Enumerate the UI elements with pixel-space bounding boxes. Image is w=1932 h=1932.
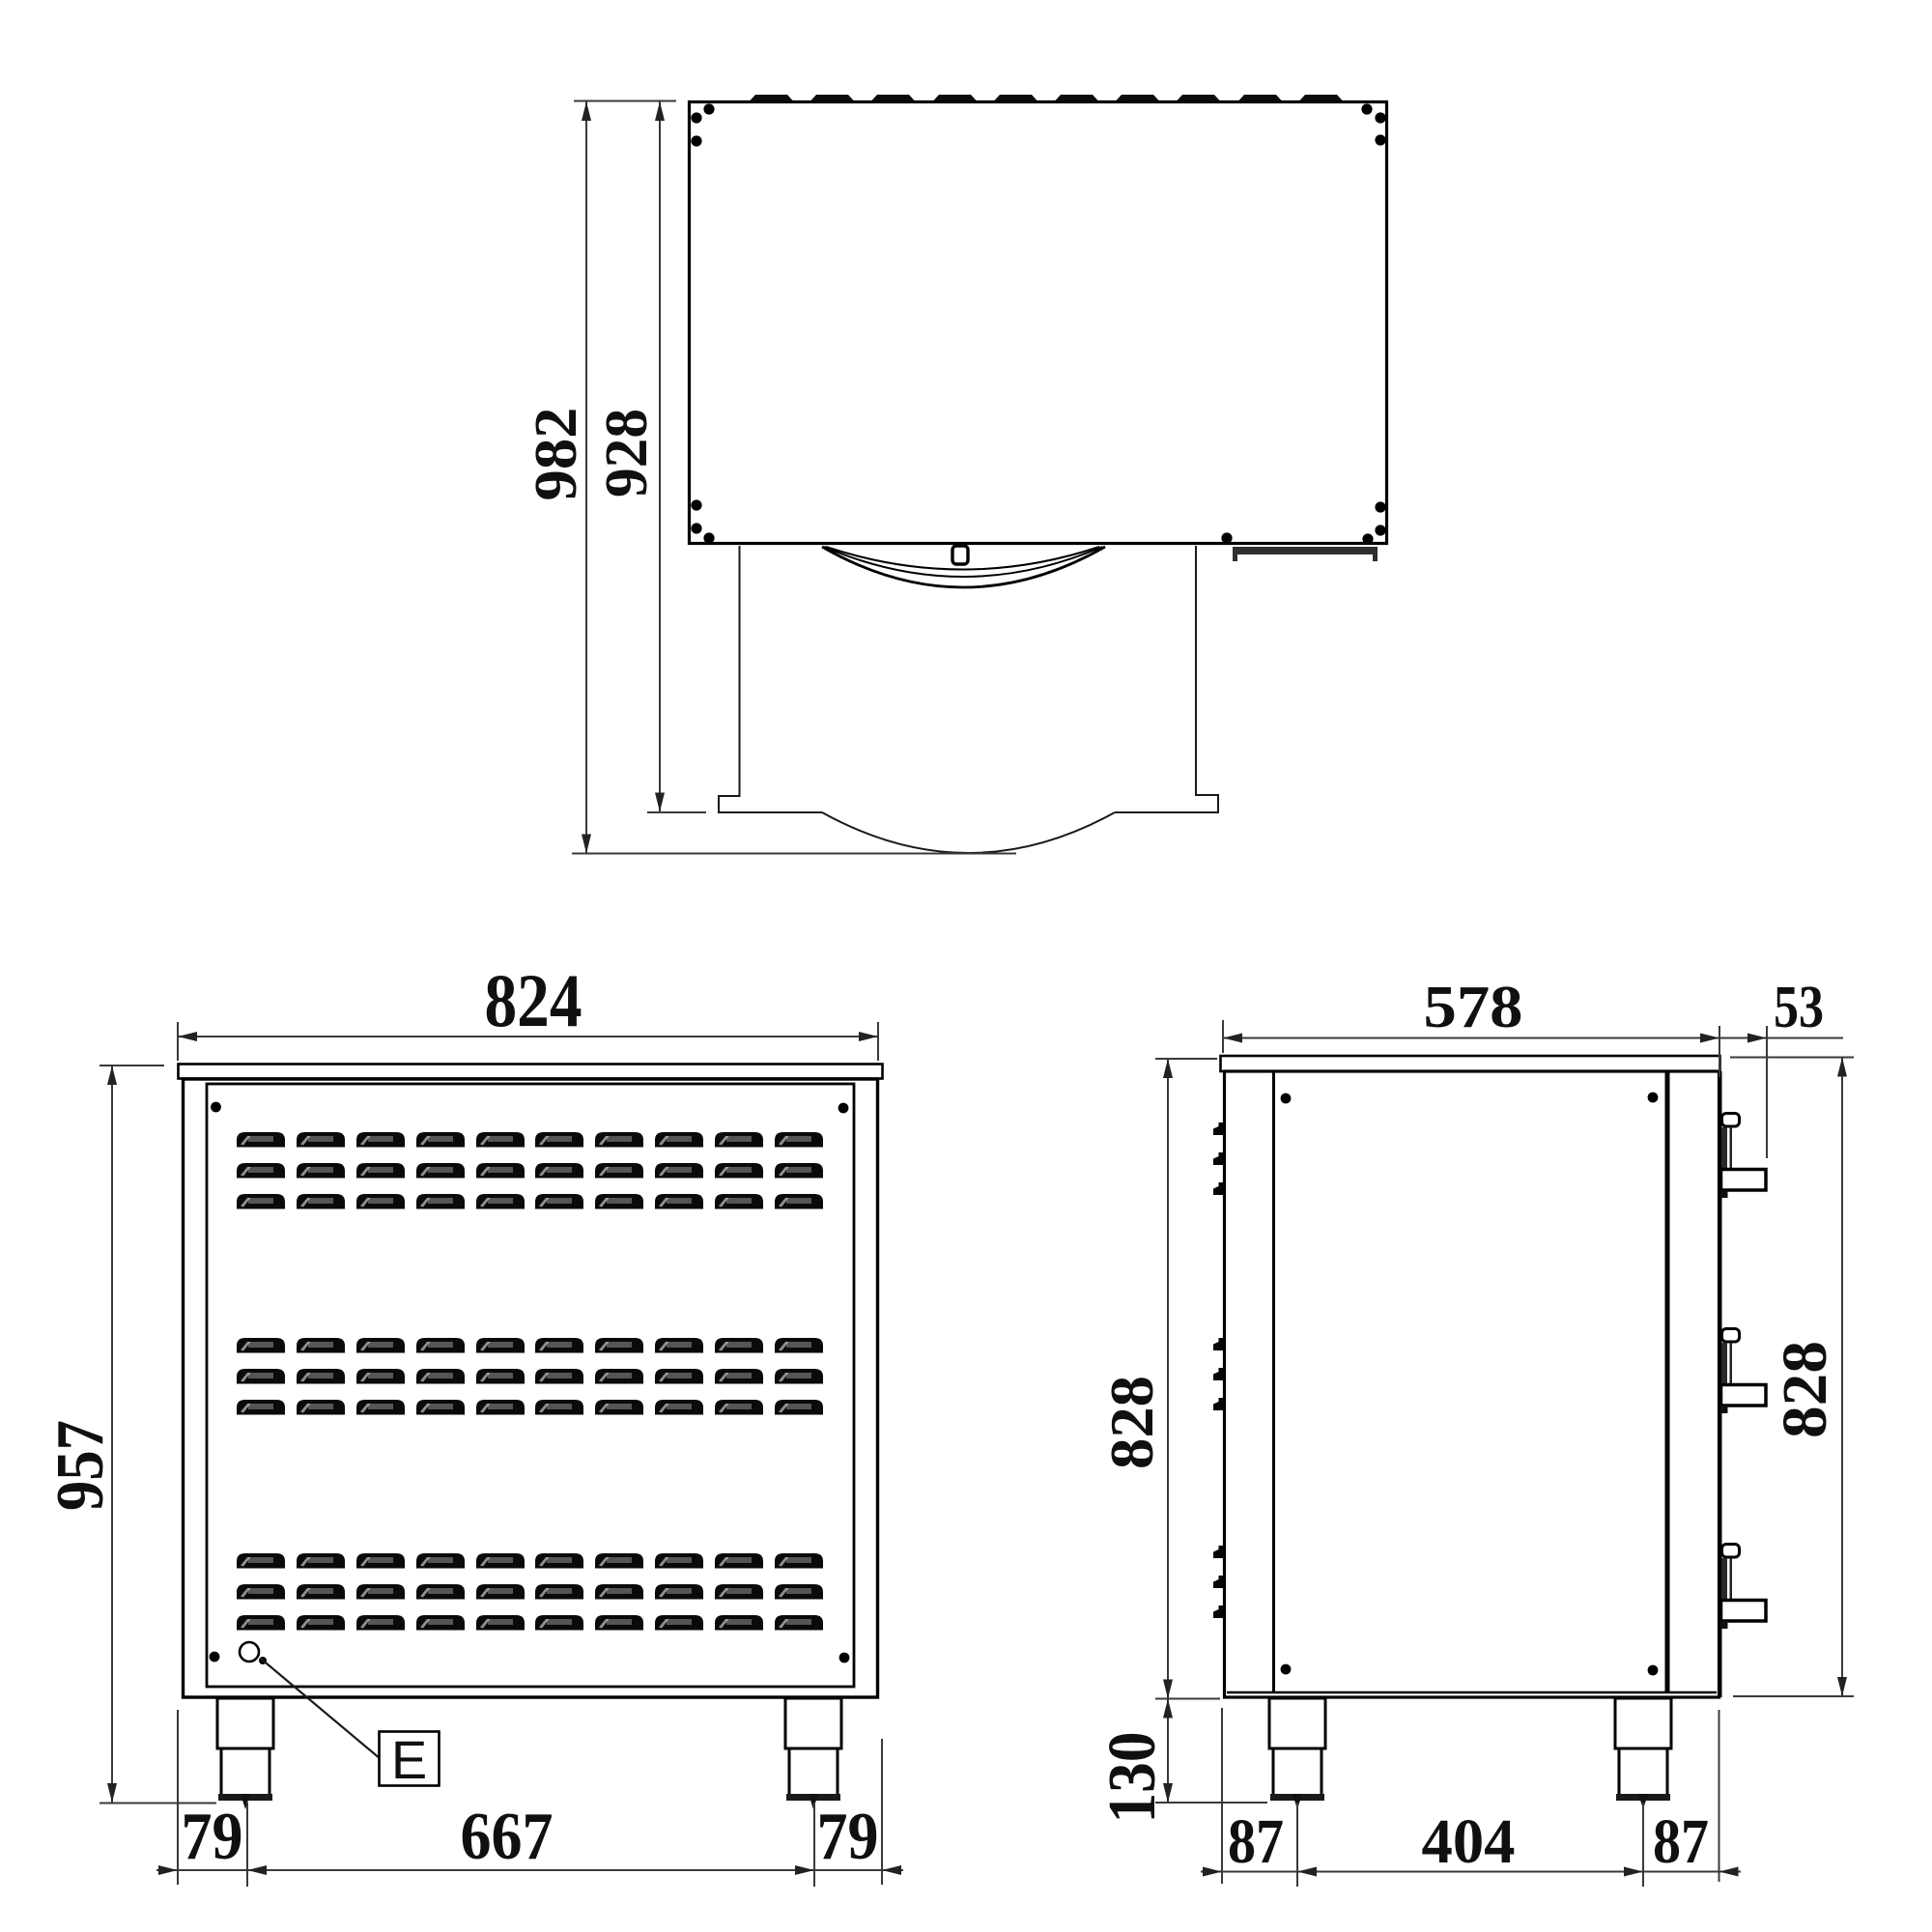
svg-text:824: 824	[485, 958, 582, 1042]
svg-text:130: 130	[1095, 1732, 1170, 1824]
svg-text:578: 578	[1424, 975, 1523, 1040]
svg-text:87: 87	[1653, 1806, 1709, 1877]
svg-text:79: 79	[817, 1800, 879, 1874]
svg-text:957: 957	[43, 1420, 118, 1511]
svg-text:87: 87	[1228, 1806, 1284, 1877]
svg-text:53: 53	[1774, 975, 1824, 1040]
svg-text:667: 667	[461, 1800, 554, 1874]
svg-text:404: 404	[1422, 1806, 1516, 1877]
svg-text:79: 79	[182, 1800, 243, 1874]
svg-text:982: 982	[524, 408, 589, 501]
svg-text:828: 828	[1097, 1376, 1166, 1469]
svg-text:828: 828	[1770, 1341, 1840, 1438]
svg-text:E: E	[391, 1729, 427, 1790]
svg-text:928: 928	[594, 409, 660, 497]
